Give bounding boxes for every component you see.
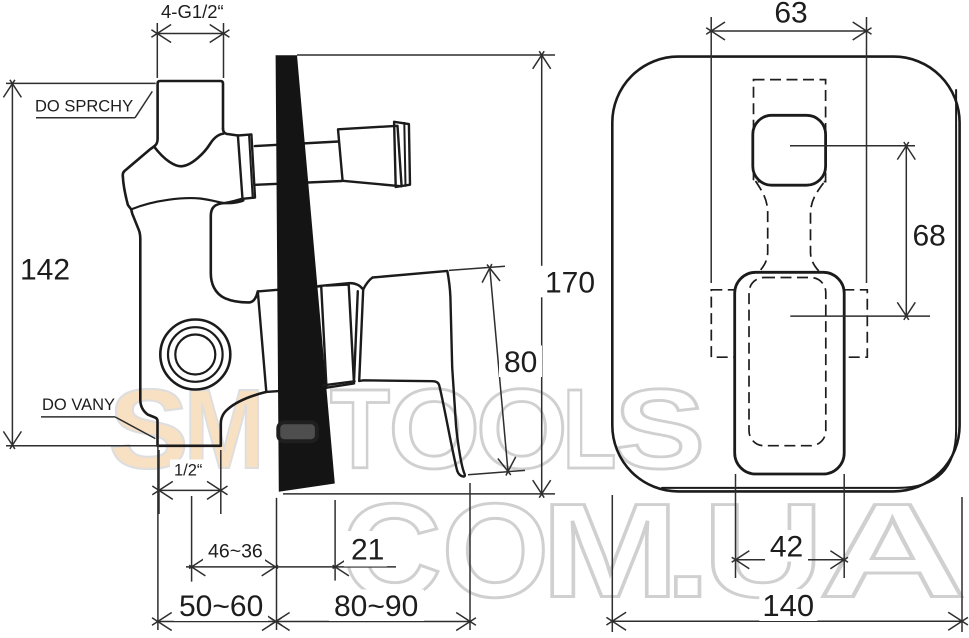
- svg-text:142: 142: [20, 254, 70, 287]
- svg-text:S: S: [614, 365, 705, 492]
- svg-text:50~60: 50~60: [179, 590, 263, 623]
- svg-text:DO VANY: DO VANY: [42, 396, 115, 414]
- svg-text:M: M: [541, 476, 679, 625]
- svg-text:21: 21: [351, 534, 384, 567]
- svg-text:O: O: [442, 476, 549, 625]
- svg-text:80: 80: [504, 346, 537, 379]
- svg-text:170: 170: [545, 266, 595, 299]
- svg-text:DO SPRCHY: DO SPRCHY: [35, 98, 133, 116]
- svg-text:42: 42: [770, 531, 803, 564]
- svg-text:A: A: [818, 475, 966, 625]
- svg-text:46~36: 46~36: [208, 541, 263, 563]
- svg-text:O: O: [389, 366, 481, 493]
- svg-text:68: 68: [913, 220, 946, 253]
- svg-text:80~90: 80~90: [334, 590, 418, 623]
- svg-text:L: L: [563, 365, 617, 492]
- svg-text:140: 140: [762, 588, 814, 623]
- svg-text:63: 63: [774, 0, 807, 30]
- svg-text:1/2“: 1/2“: [174, 462, 202, 480]
- svg-text:4-G1/2“: 4-G1/2“: [161, 1, 224, 22]
